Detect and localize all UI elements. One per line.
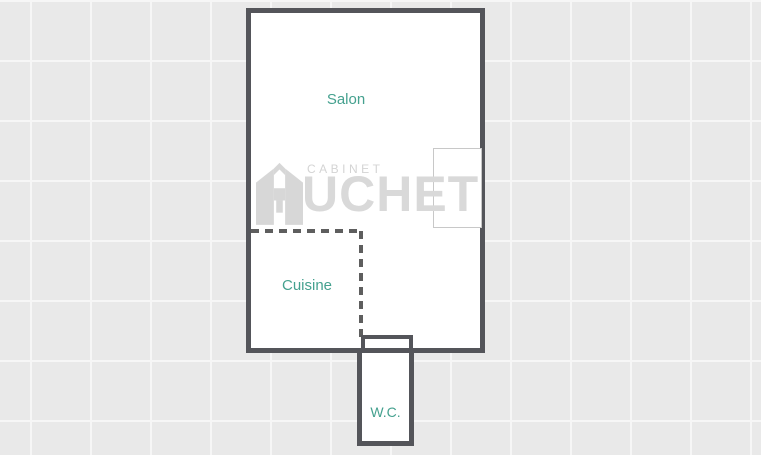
floorplan-canvas: CABINET UCHET W.C. Salon Cuisine	[0, 0, 761, 455]
cuisine-partition-horizontal-dashed	[251, 229, 363, 233]
cuisine-partition-vertical-dashed	[359, 229, 363, 337]
closet-rectangle	[433, 148, 482, 228]
room-label-salon: Salon	[306, 91, 386, 108]
wc-room-outline: W.C.	[357, 348, 414, 446]
room-label-cuisine: Cuisine	[267, 277, 347, 294]
room-label-wc: W.C.	[362, 404, 409, 420]
